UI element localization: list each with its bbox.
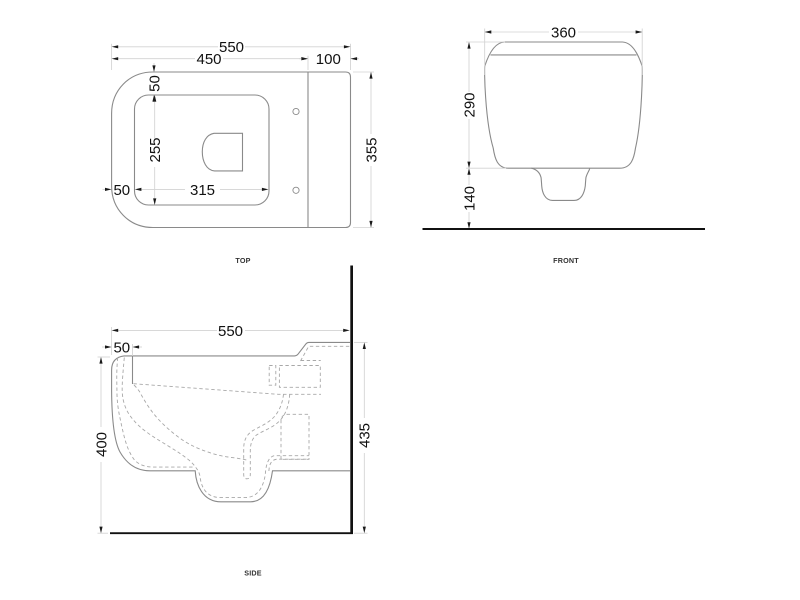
svg-text:360: 360 — [551, 24, 576, 41]
svg-text:550: 550 — [219, 39, 244, 56]
svg-text:100: 100 — [316, 51, 341, 68]
svg-text:50: 50 — [146, 75, 163, 92]
svg-text:315: 315 — [190, 182, 215, 199]
svg-text:FRONT: FRONT — [553, 256, 579, 265]
svg-text:435: 435 — [357, 423, 374, 448]
svg-text:SIDE: SIDE — [244, 568, 262, 577]
svg-text:TOP: TOP — [235, 256, 250, 265]
svg-text:355: 355 — [363, 137, 380, 162]
svg-text:255: 255 — [147, 137, 164, 162]
svg-text:400: 400 — [93, 432, 110, 457]
svg-text:290: 290 — [461, 92, 478, 117]
svg-text:450: 450 — [196, 51, 221, 68]
svg-text:50: 50 — [113, 339, 130, 356]
svg-text:50: 50 — [113, 182, 130, 199]
svg-text:140: 140 — [461, 186, 478, 211]
svg-text:550: 550 — [218, 323, 243, 340]
